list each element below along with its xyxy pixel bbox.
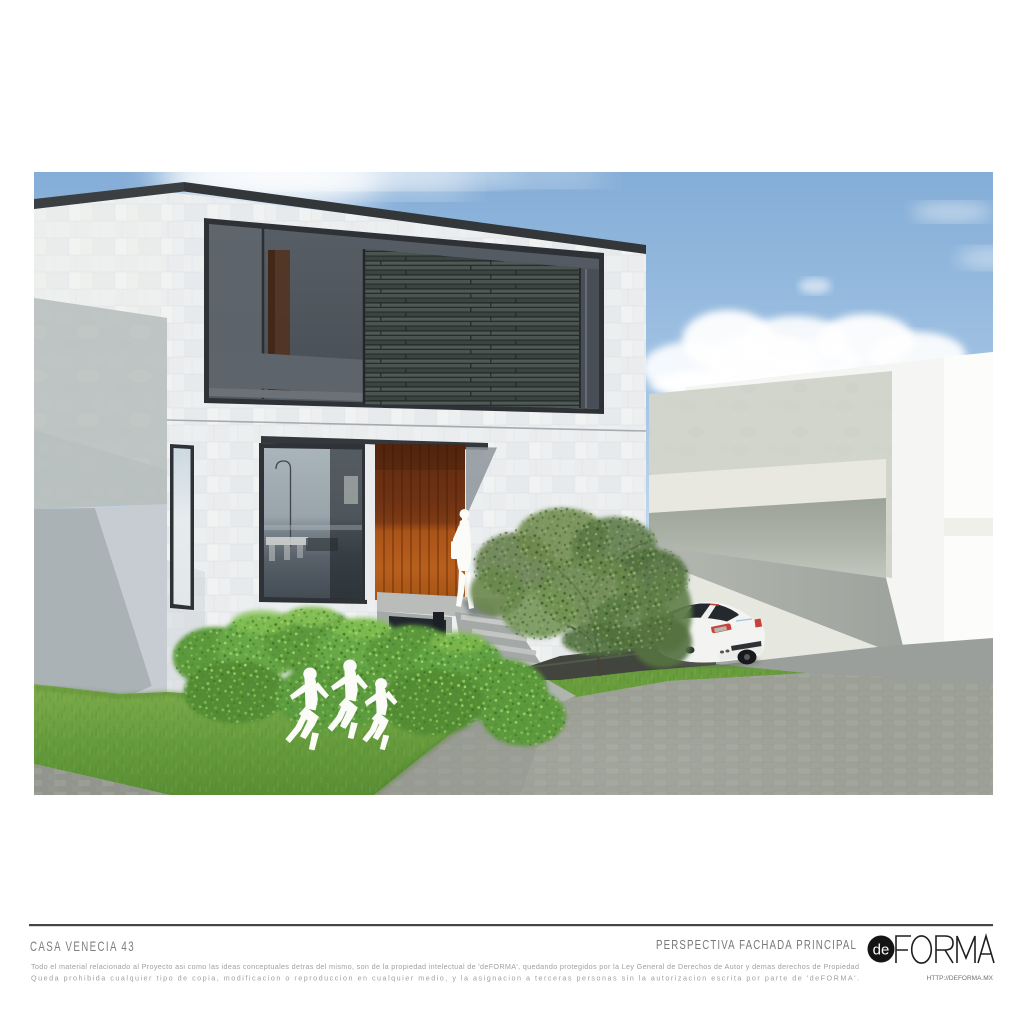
svg-text:CASA VENECIA 43: CASA VENECIA 43 xyxy=(30,938,135,954)
svg-text:Todo el material relacionado a: Todo el material relacionado al Proyecto… xyxy=(31,962,859,971)
svg-text:PERSPECTIVA FACHADA PRINCIPAL: PERSPECTIVA FACHADA PRINCIPAL xyxy=(656,938,857,952)
svg-text:HTTP://DEFORMA.MX: HTTP://DEFORMA.MX xyxy=(927,975,994,982)
svg-text:de: de xyxy=(873,942,890,959)
